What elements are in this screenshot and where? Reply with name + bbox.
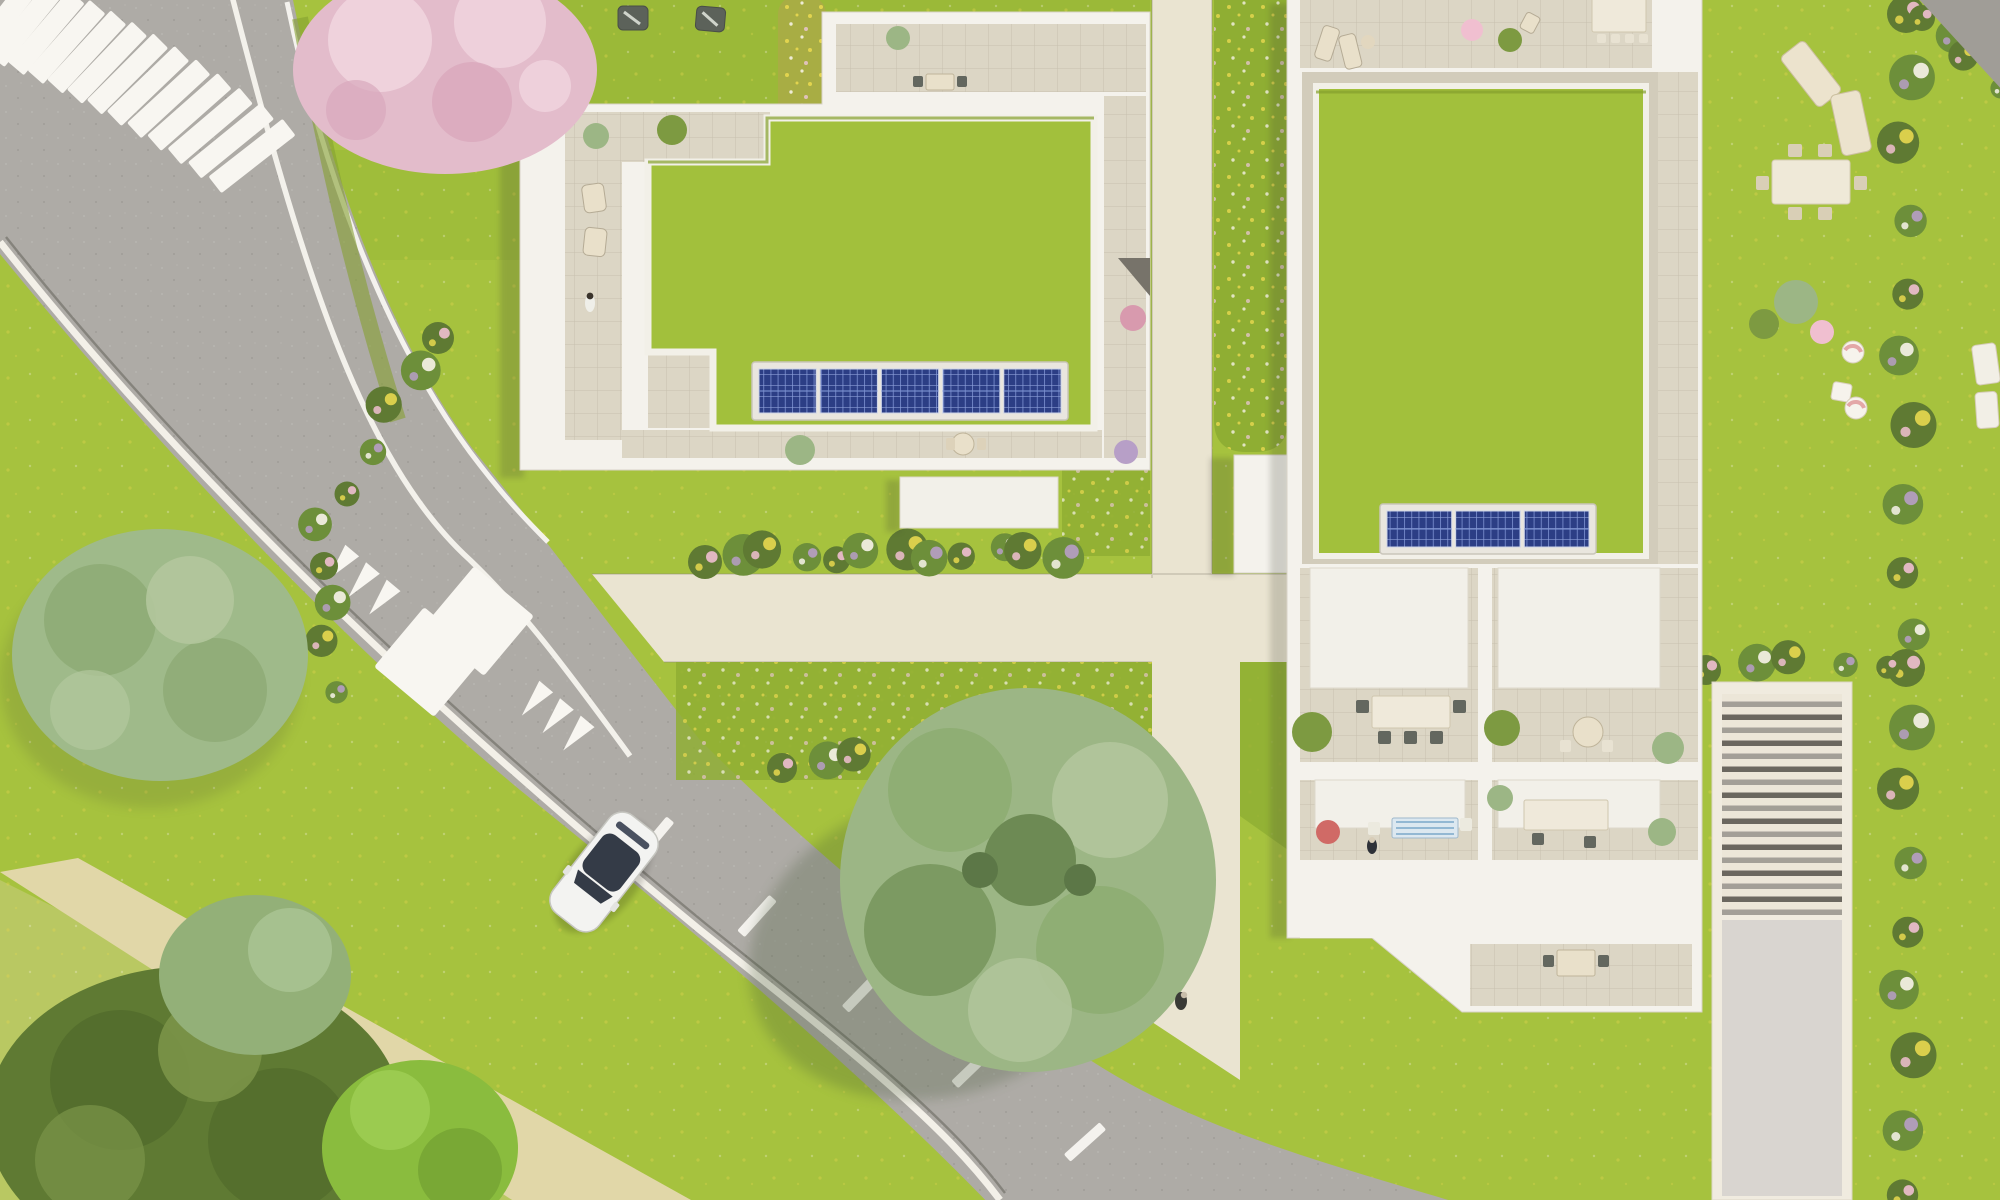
- solar-array-a: [752, 362, 1068, 420]
- ramp-slat: [1722, 850, 1842, 858]
- solar-panel-seam: [759, 390, 816, 391]
- chair: [1788, 144, 1802, 157]
- hedge-flowers: [316, 567, 322, 573]
- hedge-shrub: [1738, 644, 1776, 682]
- ramp-slat: [1722, 798, 1842, 806]
- tree-twigs: [962, 852, 998, 888]
- hedge-shrub: [1883, 484, 1924, 525]
- ramp-slat: [1722, 785, 1842, 793]
- bistro-table: [1557, 950, 1595, 976]
- ramp-slat: [1722, 889, 1842, 897]
- hedge-flowers: [1899, 295, 1906, 302]
- hedge-flowers: [751, 551, 759, 559]
- chair: [1756, 176, 1769, 190]
- hedge-flowers: [429, 339, 436, 346]
- ramp-slat-gap: [1722, 702, 1842, 708]
- chair: [1639, 34, 1648, 43]
- ramp-slat-gap: [1722, 741, 1842, 747]
- chair: [977, 438, 986, 450]
- hedge-flowers: [763, 537, 776, 550]
- hedge-shrub: [310, 552, 338, 580]
- tree-highlight: [968, 958, 1072, 1062]
- planter-bush: [1498, 28, 1522, 52]
- hedge-flowers: [1907, 656, 1920, 669]
- terrace-a-south: [622, 430, 1102, 458]
- hedge-shrub: [688, 545, 722, 579]
- hedge-shrub: [1771, 640, 1805, 674]
- hedge-flowers: [1024, 539, 1037, 552]
- hedge-flowers: [1904, 1118, 1918, 1132]
- ramp-slat-gap: [1722, 819, 1842, 825]
- hedge-flowers: [774, 769, 781, 776]
- solar-panel-seam: [943, 390, 1000, 391]
- terrace-a-north: [836, 24, 1146, 92]
- hedge-flowers: [706, 551, 718, 563]
- hedge-flowers: [850, 552, 858, 560]
- terrace-tree: [1484, 710, 1520, 746]
- chair: [1460, 818, 1472, 831]
- hedge-flowers: [855, 744, 867, 756]
- terrace-chair: [957, 76, 967, 87]
- chair: [1818, 144, 1832, 157]
- building-b: [1270, 0, 1702, 1012]
- red-bush: [1316, 820, 1340, 844]
- hedge-flowers: [1012, 552, 1020, 560]
- hedge-shrub: [366, 387, 402, 423]
- hedge-shrub: [1898, 619, 1930, 651]
- hedge-flowers: [1707, 660, 1717, 670]
- hedge-flowers: [1955, 57, 1962, 64]
- person-head: [1181, 992, 1187, 998]
- garden-shrub: [1749, 309, 1779, 339]
- terrace-chair: [913, 76, 923, 87]
- hedge-shrub: [911, 540, 948, 577]
- hedge-shrub: [1876, 656, 1899, 679]
- hedge-flowers: [1995, 89, 2000, 94]
- hedge-flowers: [1915, 410, 1931, 426]
- hedge-flowers: [799, 558, 805, 564]
- hedge-shrub: [360, 439, 386, 465]
- purple-bush: [1114, 440, 1138, 464]
- hedge-flowers: [1895, 16, 1903, 24]
- chair: [1560, 740, 1571, 752]
- chair: [1378, 731, 1391, 744]
- aerial-site-plan: [0, 0, 2000, 1200]
- ramp-slat-gap: [1722, 845, 1842, 851]
- hedge-shrub: [1892, 917, 1923, 948]
- chair: [1611, 34, 1620, 43]
- hedge-shrub: [1894, 847, 1926, 879]
- terrace-a-notch: [648, 352, 713, 428]
- hedge-flowers: [330, 693, 335, 698]
- hedge-flowers: [1904, 491, 1918, 505]
- ramp-slat-gap: [1722, 806, 1842, 812]
- hedge-flowers: [1904, 1185, 1915, 1196]
- hedge-flowers: [1051, 560, 1060, 569]
- ramp-slat: [1722, 824, 1842, 832]
- hedge-flowers: [1915, 19, 1921, 25]
- hedge-flowers: [1899, 775, 1913, 789]
- tree-texture: [163, 638, 267, 742]
- hedge-shrub: [948, 543, 975, 570]
- hedge-flowers: [1901, 222, 1908, 229]
- sun-lounger: [1971, 343, 2000, 386]
- chair: [1625, 34, 1634, 43]
- ramp-slat-gap: [1722, 858, 1842, 864]
- hedge-shrub: [767, 753, 797, 783]
- hedge-flowers: [1909, 284, 1920, 295]
- chair: [1854, 176, 1867, 190]
- hedge-shrub: [401, 351, 441, 391]
- hedge-shrub: [743, 530, 781, 568]
- hedge-shrub: [1891, 1032, 1937, 1078]
- hedge-shrub: [1894, 205, 1926, 237]
- ramp-pavement: [1722, 920, 1842, 1196]
- ramp-slat-gap: [1722, 897, 1842, 903]
- hedge-shrub: [1889, 55, 1935, 101]
- hedge-flowers: [1943, 37, 1950, 44]
- pergola-canopy: [1498, 568, 1660, 688]
- solar-panel-seam: [820, 390, 877, 391]
- dining-table: [1372, 696, 1450, 728]
- hedge-flowers: [334, 591, 346, 603]
- lounge-cushion: [581, 183, 607, 214]
- hedge-flowers: [1904, 563, 1915, 574]
- hedge-shrub: [1887, 557, 1918, 588]
- hedge-flowers: [1913, 713, 1929, 729]
- hedge-flowers: [1881, 668, 1886, 673]
- hedge-flowers: [1900, 977, 1914, 991]
- person-head: [1369, 837, 1375, 843]
- hedge-shrub: [422, 322, 454, 354]
- ramp-slat: [1722, 772, 1842, 780]
- solar-panel-seam: [1456, 528, 1521, 529]
- hedge-shrub: [842, 533, 878, 569]
- hedge-flowers: [322, 631, 333, 642]
- ramp-slat: [1722, 811, 1842, 819]
- terrace-bush: [657, 115, 687, 145]
- hedge-flowers: [316, 514, 327, 525]
- entrance-canopy-a: [900, 477, 1058, 528]
- hedge-flowers: [1891, 506, 1900, 515]
- hedge-flowers: [1746, 664, 1754, 672]
- hedge-shrub: [298, 508, 332, 542]
- hedge-shrub: [335, 482, 360, 507]
- hedge-flowers: [348, 486, 356, 494]
- hedge-flowers: [374, 443, 383, 452]
- hedge-shrub: [1883, 1110, 1924, 1151]
- garden-shrub: [1774, 280, 1818, 324]
- solar-panel-seam: [1524, 528, 1589, 529]
- terrace-bush: [785, 435, 815, 465]
- lounge-chair: [581, 183, 607, 214]
- solar-panel-seam: [1387, 528, 1452, 529]
- ramp-slat-gap: [1722, 793, 1842, 799]
- round-table: [1573, 717, 1603, 747]
- hedge-flowers: [1899, 129, 1913, 143]
- ramp-slat: [1722, 733, 1842, 741]
- hedge-flowers: [1899, 729, 1909, 739]
- hedge-flowers: [1915, 624, 1926, 635]
- hedge-flowers: [997, 548, 1003, 554]
- hedge-flowers: [844, 756, 852, 764]
- ramp-slat: [1722, 837, 1842, 845]
- side-table: [1361, 35, 1375, 49]
- chair: [1404, 731, 1417, 744]
- hedge-flowers: [385, 393, 397, 405]
- chair: [1543, 955, 1554, 967]
- hedge-flowers: [1888, 357, 1897, 366]
- garden-dining-table: [1772, 160, 1850, 204]
- tree-highlight: [146, 556, 234, 644]
- terrace-tree: [1292, 712, 1332, 752]
- lounge-chair: [583, 227, 608, 257]
- hedge-flowers: [1901, 864, 1908, 871]
- terrace-bush: [583, 123, 609, 149]
- hedge-flowers: [953, 557, 959, 563]
- ramp-slat: [1722, 759, 1842, 767]
- hedge-flowers: [895, 551, 904, 560]
- green-roof-b: [1316, 86, 1646, 556]
- chair: [1532, 833, 1544, 845]
- hedge-shrub: [1833, 653, 1857, 677]
- chair: [1453, 700, 1466, 713]
- ramp-slat-gap: [1722, 884, 1842, 890]
- terrace-b-east: [1658, 72, 1698, 564]
- hedge-flowers: [1900, 427, 1910, 437]
- hedge-flowers: [1886, 790, 1895, 799]
- hedge-flowers: [1889, 660, 1897, 668]
- tree-highlight: [248, 908, 332, 992]
- hedge-flowers: [422, 358, 436, 372]
- walkway-north: [1152, 0, 1212, 578]
- hedge-shrub: [1042, 537, 1084, 579]
- blossom-shade: [326, 80, 386, 140]
- hedge-flowers: [1900, 1057, 1910, 1067]
- hedge-flowers: [1899, 79, 1909, 89]
- hedge-shrub: [1891, 402, 1937, 448]
- terrace-divider-wall: [1300, 762, 1698, 780]
- chair: [1602, 740, 1613, 752]
- ramp-slat-gap: [1722, 780, 1842, 786]
- chair: [1598, 955, 1609, 967]
- hedge-flowers: [1846, 657, 1854, 665]
- pink-bush: [1120, 305, 1146, 331]
- hedge-flowers: [930, 547, 942, 559]
- chair: [1597, 34, 1606, 43]
- hedge-shrub: [1877, 122, 1919, 164]
- hedge-flowers: [919, 560, 927, 568]
- hedge-flowers: [1912, 211, 1923, 222]
- terrace-bush: [1652, 732, 1684, 764]
- hedge-flowers: [962, 547, 971, 556]
- chair: [1356, 700, 1369, 713]
- hedge-flowers: [325, 557, 335, 567]
- hedge-shrub: [793, 543, 821, 571]
- tree-highlight: [350, 1070, 430, 1150]
- hedge-flowers: [1839, 666, 1844, 671]
- walkway-central-band: [592, 574, 1287, 662]
- hedge-flowers: [1888, 991, 1897, 1000]
- building-b-south-band: [1300, 860, 1698, 938]
- terrace-bush: [1648, 818, 1676, 846]
- dining-table: [1524, 800, 1608, 830]
- ramp-slat-gap: [1722, 754, 1842, 760]
- flower-cluster: [1810, 320, 1834, 344]
- hedge-flowers: [1905, 636, 1912, 643]
- garage-ramp: [1712, 682, 1852, 1200]
- terrace-table: [926, 74, 954, 90]
- hedge-shrub: [1877, 768, 1919, 810]
- hedge-flowers: [1899, 934, 1906, 941]
- chair: [1818, 207, 1832, 220]
- hedge-shrub: [315, 585, 351, 621]
- tree-twigs: [1064, 864, 1096, 896]
- ramp-slat-gap: [1722, 871, 1842, 877]
- hedge-flowers: [312, 642, 319, 649]
- hedge-flowers: [817, 762, 825, 770]
- hedge-flowers: [409, 372, 418, 381]
- hedge-flowers: [732, 557, 741, 566]
- blossom-highlight: [519, 60, 571, 112]
- ramp-slat-gap: [1722, 715, 1842, 721]
- hedge-flowers: [861, 539, 873, 551]
- ramp-slat-gap: [1722, 767, 1842, 773]
- hedge-flowers: [439, 328, 450, 339]
- hedge-flowers: [808, 548, 818, 558]
- solar-array-b: [1380, 504, 1596, 554]
- hedge-shrub: [1879, 970, 1919, 1010]
- hedge-shrub: [305, 625, 337, 657]
- ramp-slat: [1722, 707, 1842, 715]
- hedge-shrub: [1892, 279, 1923, 310]
- hedge-flowers: [1909, 922, 1920, 933]
- solar-panel-seam: [1004, 390, 1061, 391]
- ramp-slat: [1722, 876, 1842, 884]
- hedge-flowers: [305, 526, 312, 533]
- ramp-slat-gap: [1722, 728, 1842, 734]
- hedge-flowers: [1912, 853, 1923, 864]
- site-plan-canvas: [0, 0, 2000, 1200]
- tree-core: [984, 814, 1076, 906]
- chair: [946, 438, 955, 450]
- ramp-slat: [1722, 694, 1842, 702]
- sun-lounger: [1975, 391, 1999, 428]
- ramp-slat-gap: [1722, 832, 1842, 838]
- hedge-flowers: [695, 563, 702, 570]
- chair: [1368, 822, 1380, 835]
- hedge-flowers: [1886, 144, 1895, 153]
- tree-highlight: [50, 670, 130, 750]
- hedge-flowers: [783, 758, 793, 768]
- ramp-slat: [1722, 746, 1842, 754]
- chair: [1788, 207, 1802, 220]
- hedge-flowers: [323, 604, 331, 612]
- chair: [1430, 731, 1443, 744]
- ramp-slat: [1722, 720, 1842, 728]
- hedge-flowers: [1900, 343, 1914, 357]
- pergola-canopy: [1310, 568, 1468, 688]
- planter-bush: [886, 26, 910, 50]
- hedge-flowers: [1789, 646, 1801, 658]
- roof-dining-table: [1592, 0, 1646, 32]
- blossom-shade: [432, 62, 512, 142]
- hedge-flowers: [373, 406, 381, 414]
- hedge-flowers: [1065, 545, 1079, 559]
- hedge-flowers: [1894, 574, 1901, 581]
- hedge-flowers: [340, 495, 345, 500]
- hedge-shrub: [1879, 336, 1919, 376]
- solar-panel-seam: [881, 390, 938, 391]
- ramp-slat-gap: [1722, 910, 1842, 916]
- hedge-shrub: [1889, 705, 1935, 751]
- canopy-shadow: [886, 480, 901, 532]
- cube-shadow: [1210, 458, 1234, 576]
- hedge-flowers: [337, 685, 345, 693]
- ramp-slat: [1722, 863, 1842, 871]
- hedge-flowers: [829, 561, 835, 567]
- lounge-cushion: [583, 227, 608, 257]
- terrace-divider-wall: [1478, 568, 1492, 860]
- hedge-flowers: [1758, 651, 1771, 664]
- ramp-slats: [1722, 694, 1842, 915]
- hedge-shrub: [325, 681, 347, 703]
- hedge-flowers: [1778, 659, 1786, 667]
- hedge-flowers: [1891, 1132, 1900, 1141]
- hedge-shrub: [837, 737, 871, 771]
- hedge-flowers: [366, 453, 372, 459]
- chair: [1584, 836, 1596, 848]
- hedge-shrub: [1004, 532, 1041, 569]
- flowering-bush: [1487, 785, 1513, 811]
- flower-pot: [1461, 19, 1483, 41]
- ramp-slat: [1722, 902, 1842, 910]
- person-head: [587, 293, 594, 300]
- hedge-flowers: [1913, 63, 1929, 79]
- tree-texture: [44, 564, 156, 676]
- hedge-flowers: [1915, 1041, 1931, 1057]
- round-table: [952, 433, 974, 455]
